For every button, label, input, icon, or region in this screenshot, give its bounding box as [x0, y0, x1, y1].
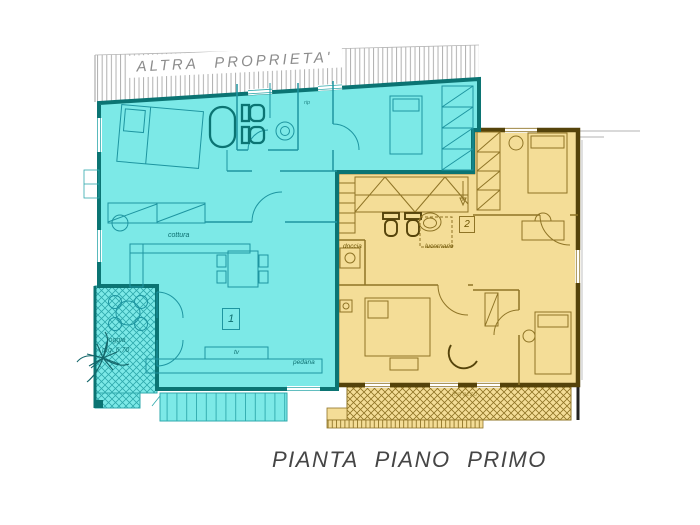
floor-plan-canvas: ALTRA PROPRIETA' cottura rip tv pedana l…	[0, 0, 700, 525]
unit-2-number-badge: 2	[459, 216, 475, 233]
plan-title: PIANTA PIANO PRIMO	[272, 447, 547, 473]
terrace-unit-2	[327, 385, 578, 428]
loggia-unit-1	[77, 286, 157, 408]
unit-1-number-badge: 1	[222, 308, 240, 330]
balcony-unit-1	[152, 393, 287, 421]
